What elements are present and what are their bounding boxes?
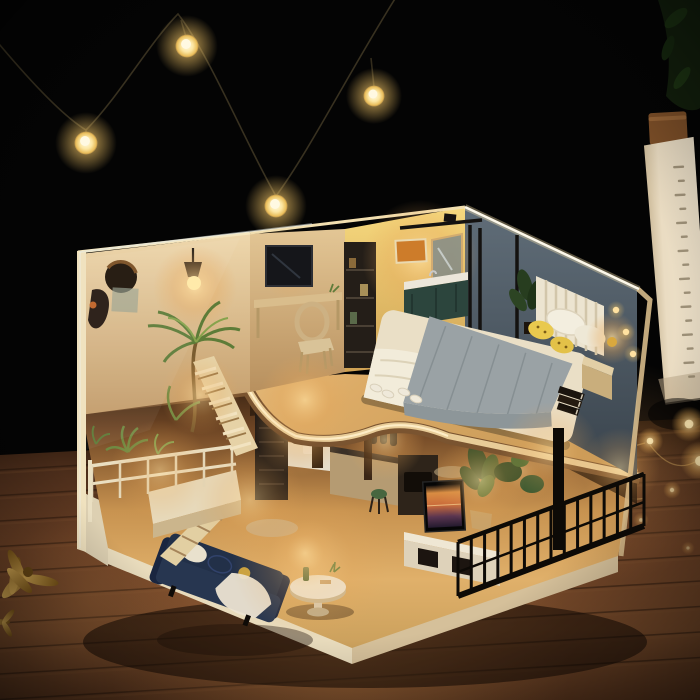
scene-svg xyxy=(0,0,700,700)
vignette-overlay xyxy=(0,0,700,700)
photo-stage: Night product photo of an illuminated DI… xyxy=(0,0,700,700)
